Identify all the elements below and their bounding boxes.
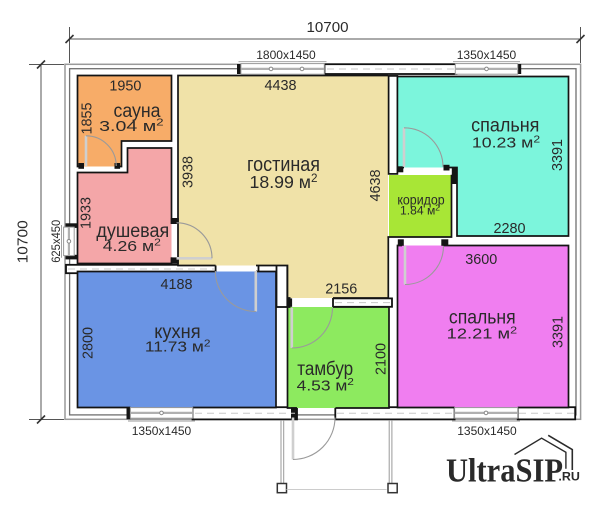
svg-text:спальня: спальня: [471, 115, 539, 136]
svg-text:1950: 1950: [109, 78, 141, 94]
svg-text:10700: 10700: [307, 19, 349, 36]
svg-text:1855: 1855: [80, 102, 96, 134]
svg-text:1350x1450: 1350x1450: [457, 50, 517, 62]
svg-text:4638: 4638: [368, 169, 384, 201]
svg-text:2156: 2156: [325, 282, 357, 298]
svg-text:1933: 1933: [79, 197, 95, 229]
svg-text:3391: 3391: [551, 316, 567, 348]
svg-text:12.21 м2: 12.21 м2: [447, 325, 518, 342]
svg-text:тамбур: тамбур: [297, 359, 353, 380]
svg-text:11.73 м2: 11.73 м2: [145, 338, 211, 355]
svg-text:10700: 10700: [15, 220, 32, 263]
svg-text:18.99 м2: 18.99 м2: [250, 172, 318, 192]
svg-text:.RU: .RU: [558, 470, 580, 484]
svg-text:625x450: 625x450: [51, 220, 63, 263]
svg-text:1350x1450: 1350x1450: [457, 426, 517, 438]
svg-text:3938: 3938: [181, 156, 197, 188]
svg-text:1350x1450: 1350x1450: [132, 426, 192, 438]
svg-text:4.53 м2: 4.53 м2: [297, 377, 355, 394]
svg-text:2100: 2100: [374, 343, 390, 375]
svg-text:1800x1450: 1800x1450: [256, 50, 316, 62]
svg-text:1.84 м2: 1.84 м2: [400, 204, 440, 218]
svg-text:3600: 3600: [465, 252, 497, 268]
svg-text:UltraSIP: UltraSIP: [446, 453, 563, 490]
svg-text:4.26 м2: 4.26 м2: [103, 238, 162, 255]
svg-text:3391: 3391: [550, 139, 566, 171]
svg-text:3.04 м2: 3.04 м2: [99, 118, 164, 135]
svg-text:4188: 4188: [160, 277, 192, 293]
svg-text:4438: 4438: [264, 78, 296, 94]
svg-text:спальня: спальня: [449, 308, 516, 329]
svg-text:10.23 м2: 10.23 м2: [472, 134, 541, 151]
svg-text:2280: 2280: [493, 221, 525, 237]
svg-text:2800: 2800: [81, 327, 97, 359]
